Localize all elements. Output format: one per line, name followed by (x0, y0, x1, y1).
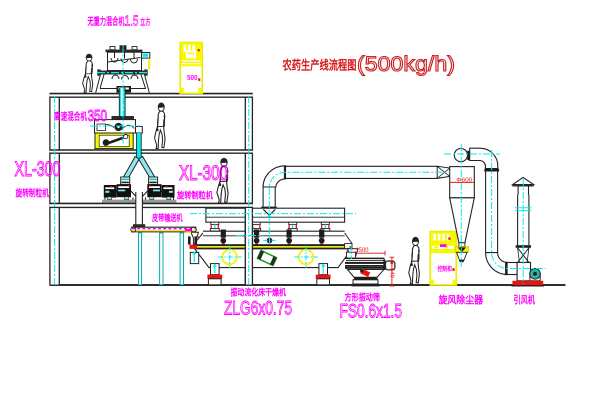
svg-text:ZLG6x0.75: ZLG6x0.75 (224, 299, 292, 320)
svg-text:1500: 1500 (356, 247, 369, 254)
svg-text:1.5: 1.5 (125, 14, 139, 30)
svg-text:旋风除尘器: 旋风除尘器 (438, 294, 484, 307)
svg-text:540: 540 (388, 268, 394, 278)
svg-text:控制柜: 控制柜 (438, 265, 453, 273)
svg-text:XL-300: XL-300 (15, 157, 61, 181)
svg-text:350: 350 (88, 108, 108, 125)
svg-text:旋转制粒机: 旋转制粒机 (15, 188, 49, 200)
svg-text:Φ600: Φ600 (456, 178, 472, 184)
svg-text:无重力混合机: 无重力混合机 (87, 15, 125, 28)
svg-text:FS0.6x1.5: FS0.6x1.5 (340, 301, 403, 323)
svg-text:引风机: 引风机 (514, 294, 536, 307)
svg-text:XL-300: XL-300 (179, 161, 228, 185)
svg-text:农药生产线流程图: 农药生产线流程图 (282, 58, 357, 73)
svg-text:(500kg/h): (500kg/h) (357, 52, 455, 76)
svg-text:旋转制粒机: 旋转制粒机 (176, 190, 213, 201)
svg-text:振动流化床干燥机: 振动流化床干燥机 (231, 287, 287, 298)
svg-text:皮带输送机: 皮带输送机 (151, 212, 183, 223)
svg-text:立方: 立方 (140, 16, 151, 27)
svg-text:高速混合机: 高速混合机 (54, 110, 87, 123)
svg-text:500: 500 (187, 73, 198, 82)
